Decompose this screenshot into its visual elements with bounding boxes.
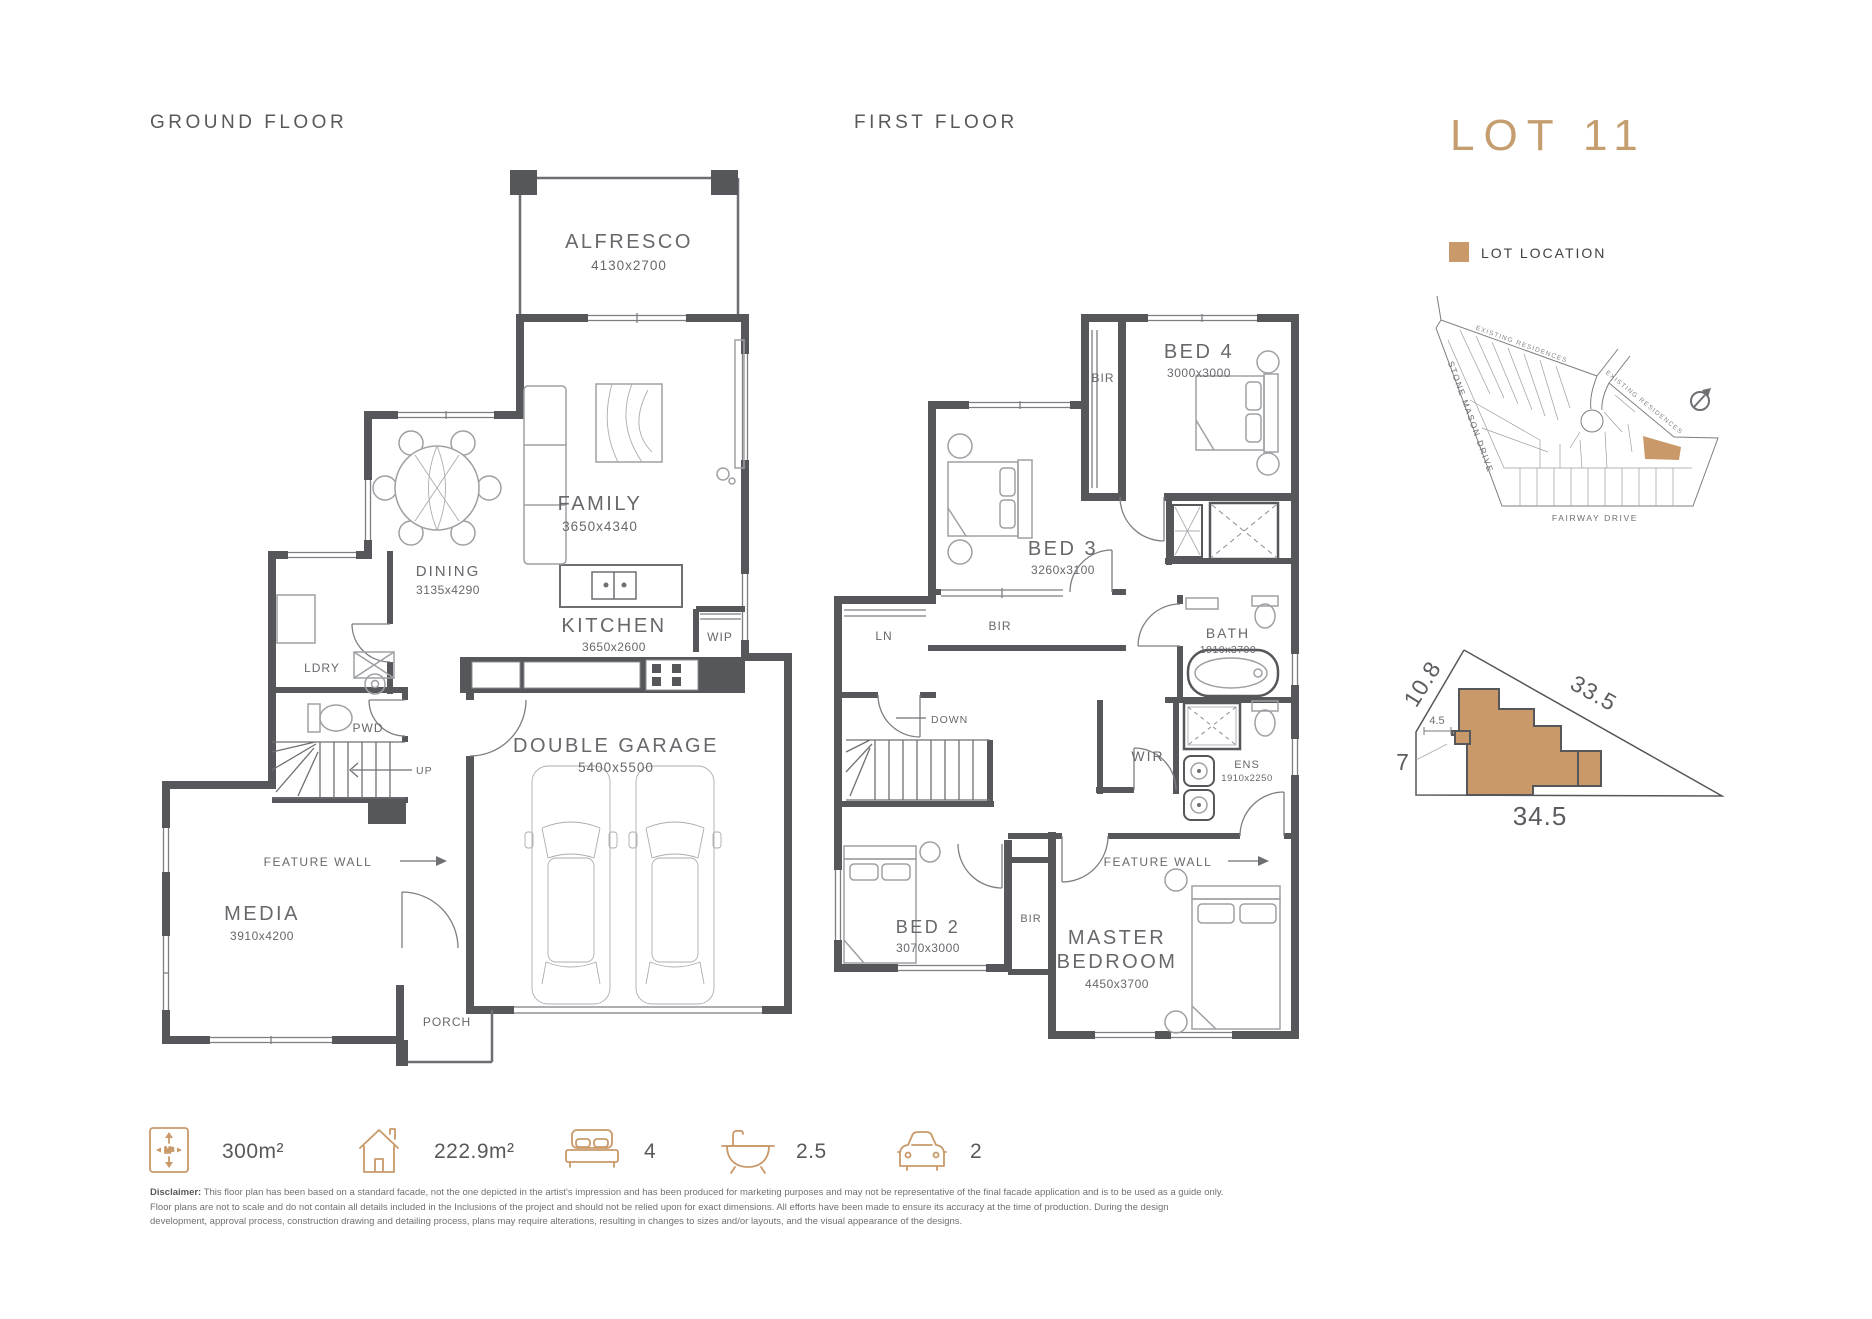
media-label: MEDIA [224, 903, 300, 925]
family-label: FAMILY [558, 493, 643, 515]
laundry-bench-icon [277, 595, 315, 643]
ground-floor-plan: GROUND FLOOR ALFRESCO 4130x2700 [150, 112, 792, 1066]
house-icon [360, 1129, 398, 1172]
lot-location-map: STONE MASON DRIVE FAIRWAY DRIVE EXISTING… [1436, 296, 1718, 523]
bir-bed2-label: BIR [1020, 913, 1041, 925]
down-label: DOWN [931, 714, 968, 726]
stair-wall-stub [368, 800, 406, 824]
wir-label: WIR [1131, 748, 1164, 764]
wip-label: WIP [707, 630, 733, 644]
land-size-icon: M² [150, 1128, 188, 1172]
site-dim-4-5: 4.5 [1429, 715, 1444, 727]
lot-location-label: LOT LOCATION [1481, 245, 1606, 261]
ground-floor-title: GROUND FLOOR [150, 112, 347, 133]
garage-dims: 5400x5500 [578, 760, 654, 775]
bed4-dims: 3000x3000 [1167, 366, 1231, 380]
master-dims: 4450x3700 [1085, 977, 1149, 991]
car-icon [525, 766, 721, 1004]
kitchen-label: KITCHEN [561, 615, 666, 637]
bath-dims: 1910x3700 [1200, 644, 1256, 656]
alfresco-dims: 4130x2700 [591, 258, 667, 273]
bed-icon [566, 1130, 618, 1167]
disclaimer-body: This floor plan has been based on a stan… [150, 1187, 1224, 1227]
floorplan-page: GROUND FLOOR ALFRESCO 4130x2700 [0, 0, 1872, 1319]
arrow-right-icon [1258, 856, 1269, 866]
bath-vanity-icon [1186, 598, 1218, 609]
street-fairway: FAIRWAY DRIVE [1552, 513, 1638, 523]
shower-icon [1184, 703, 1240, 749]
master-label-1: MASTER [1068, 927, 1166, 949]
land-area-value: 300m² [222, 1140, 284, 1163]
bed2-dims: 3070x3000 [896, 941, 960, 955]
highlighted-lot [1643, 436, 1681, 460]
stairs-up: UP [272, 742, 433, 798]
porch-label: PORCH [423, 1015, 471, 1029]
lot-panel: LOT 11 LOT LOCATION STONE MASON DRIVE FA… [1396, 111, 1722, 831]
bir-shelf [1092, 330, 1097, 488]
media-dims: 3910x4200 [230, 929, 294, 943]
bed4-label: BED 4 [1164, 341, 1234, 363]
garage-label: DOUBLE GARAGE [513, 735, 719, 757]
site-dim-34-5: 34.5 [1513, 801, 1568, 831]
family-dims: 3650x4340 [562, 519, 638, 534]
first-floor-title: FIRST FLOOR [854, 112, 1018, 133]
dining-label: DINING [416, 563, 481, 580]
ensuite-fixtures [1184, 701, 1278, 820]
feature-wall-ground-label: FEATURE WALL [264, 855, 373, 869]
kitchen-bench [460, 657, 745, 693]
bir-bed3-label: BIR [988, 619, 1011, 633]
lot-title: LOT 11 [1450, 111, 1647, 160]
house-area-value: 222.9m² [434, 1140, 515, 1163]
kitchen-dims: 3650x2600 [582, 640, 646, 654]
site-dim-33-5: 33.5 [1566, 670, 1621, 716]
svg-text:M²: M² [164, 1146, 174, 1155]
existing-residences-top: EXISTING RESIDENCES [1475, 325, 1569, 365]
dining-table-icon [373, 431, 501, 545]
master-label-2: BEDROOM [1057, 951, 1178, 973]
ground-interior-walls [268, 551, 408, 800]
kitchen-island [560, 565, 682, 607]
feature-wall-first: FEATURE WALL [1104, 855, 1269, 869]
car-front-icon [898, 1132, 946, 1170]
bath-label: BATH [1206, 625, 1250, 641]
baths-value: 2.5 [796, 1140, 827, 1163]
feature-wall-first-label: FEATURE WALL [1104, 855, 1213, 869]
alfresco-label: ALFRESCO [565, 231, 693, 253]
bed3-dims: 3260x3100 [1031, 563, 1095, 577]
lot-location-swatch-icon [1449, 242, 1469, 262]
feature-wall-ground: FEATURE WALL [264, 855, 447, 869]
master-bed-icon [1165, 869, 1280, 1033]
summary-stats: M² 300m² 222.9m² 4 2.5 [150, 1128, 982, 1173]
site-dim-7: 7 [1396, 749, 1410, 775]
bed3-label: BED 3 [1028, 538, 1098, 560]
bed2-label: BED 2 [896, 917, 961, 937]
arrow-right-icon [436, 856, 447, 866]
wc-bowl-icon [320, 705, 352, 731]
ens-label: ENS [1234, 759, 1260, 771]
site-diagram: 4.5 10.8 33.5 7 34.5 [1396, 650, 1722, 831]
floorplan-canvas: GROUND FLOOR ALFRESCO 4130x2700 [0, 0, 1872, 1319]
up-label: UP [416, 765, 433, 777]
porch: PORCH [396, 1010, 492, 1066]
rug-icon [596, 384, 662, 462]
beds-value: 4 [644, 1140, 656, 1163]
bath-icon [722, 1131, 774, 1173]
wc-cistern-icon [308, 704, 320, 732]
stairs-down: DOWN [846, 714, 990, 800]
ldry-label: LDRY [304, 661, 340, 675]
existing-residences-right: EXISTING RESIDENCES [1604, 370, 1684, 437]
sofa-icon [524, 386, 566, 564]
disclaimer-label: Disclaimer: [150, 1187, 201, 1198]
bathtub-icon [1188, 650, 1278, 696]
cul-de-sac-icon [1581, 410, 1603, 432]
first-floor-plan: FIRST FLOOR [834, 112, 1299, 1039]
site-dim-10-8: 10.8 [1398, 656, 1446, 711]
ln-label: LN [875, 629, 892, 643]
bir-bed4-label: BIR [1091, 371, 1114, 385]
pwd-label: PWD [353, 721, 384, 735]
disclaimer: Disclaimer: This floor plan has been bas… [150, 1186, 1225, 1230]
street-stone-mason: STONE MASON DRIVE [1446, 360, 1496, 474]
linen-cupboard-icon [1173, 503, 1278, 559]
dining-dims: 3135x4290 [416, 583, 480, 597]
bed3-icon [948, 434, 1032, 564]
cars-value: 2 [970, 1140, 982, 1163]
alfresco-room: ALFRESCO 4130x2700 [510, 170, 738, 314]
ens-dims: 1910x2250 [1221, 773, 1273, 784]
compass-icon [1691, 388, 1711, 410]
